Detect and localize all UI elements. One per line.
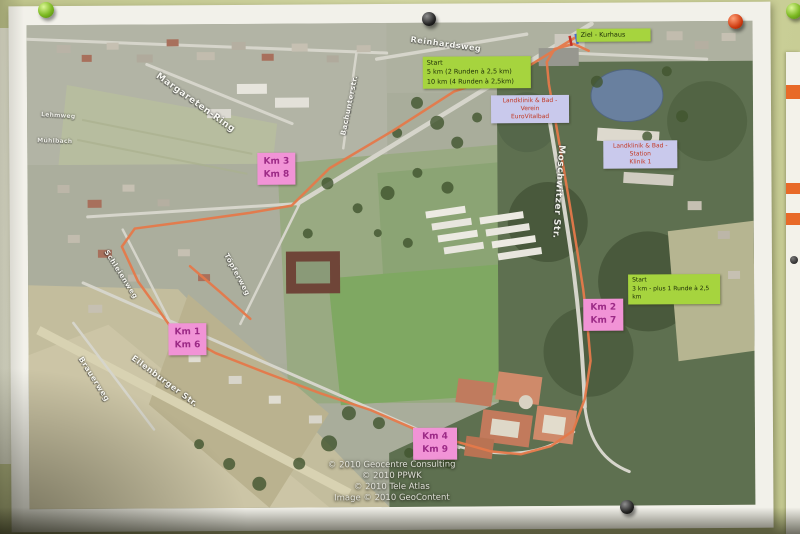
pinboard-photo: { "sheet": { "street_labels": [ {"text":… <box>0 0 800 534</box>
pushpin-green-top-left <box>38 2 54 18</box>
km-marker: Km 4 Km 9 <box>413 428 457 460</box>
km-line: Km 9 <box>413 444 457 457</box>
km-line: Km 1 <box>168 326 206 339</box>
map-sheet: Reinhardsweg Margareten-Ring Bachunterst… <box>8 2 773 533</box>
start-info-box: Start 5 km (2 Runden à 2,5 km) 10 km (4 … <box>423 56 531 89</box>
klinik-verein-box: Landklinik & Bad - Verein EuroVitalbad <box>491 95 569 124</box>
klinik-station-line: Klinik 1 <box>606 158 674 167</box>
orange-band <box>786 183 800 194</box>
pushpin-black-bottom <box>620 500 634 514</box>
klinik-station-line: Landklinik & Bad - Station <box>606 142 674 159</box>
map-copyright: © 2010 Geocentre Consulting © 2010 PPWK … <box>319 460 464 505</box>
satellite-image <box>27 21 756 509</box>
pushpin-small-right <box>790 256 798 264</box>
km-line: Km 2 <box>583 302 623 315</box>
km-line: Km 4 <box>413 431 457 444</box>
orange-band <box>786 85 800 99</box>
klinik-verein-line: EuroVitalbad <box>494 113 566 122</box>
copyright-line: © 2010 PPWK <box>319 471 464 483</box>
street-label: Mühlbach <box>37 137 72 145</box>
km-marker: Km 3 Km 8 <box>257 153 295 185</box>
pushpin-green-corner <box>786 3 800 19</box>
copyright-line: Image © 2010 GeoContent <box>319 493 464 505</box>
km-line: Km 6 <box>168 339 206 352</box>
finish-label: Ziel - Kurhaus <box>581 30 647 40</box>
km-line: Km 7 <box>583 315 623 328</box>
km-marker: Km 2 Km 7 <box>583 299 623 331</box>
km-line: Km 8 <box>257 169 295 182</box>
satellite-map: Reinhardsweg Margareten-Ring Bachunterst… <box>27 21 756 509</box>
start-3km-box: Start 3 km - plus 1 Runde à 2,5 km <box>628 274 720 305</box>
km-line: Km 3 <box>257 156 295 169</box>
km-marker: Km 1 Km 6 <box>168 323 206 355</box>
start-3km-line: 3 km - plus 1 Runde à 2,5 km <box>632 285 716 303</box>
pond <box>591 69 663 121</box>
copyright-line: © 2010 Geocentre Consulting <box>319 460 464 472</box>
start-info-line: 10 km (4 Runden à 2,5km) <box>427 77 527 87</box>
right-paper-edge <box>786 52 800 534</box>
klinik-verein-line: Landklinik & Bad - Verein <box>494 97 566 114</box>
finish-box: Ziel - Kurhaus <box>577 28 651 42</box>
pushpin-red-top-right <box>728 14 743 29</box>
orange-band <box>786 213 800 225</box>
pushpin-black-top <box>422 12 436 26</box>
klinik-station-box: Landklinik & Bad - Station Klinik 1 <box>603 140 677 169</box>
